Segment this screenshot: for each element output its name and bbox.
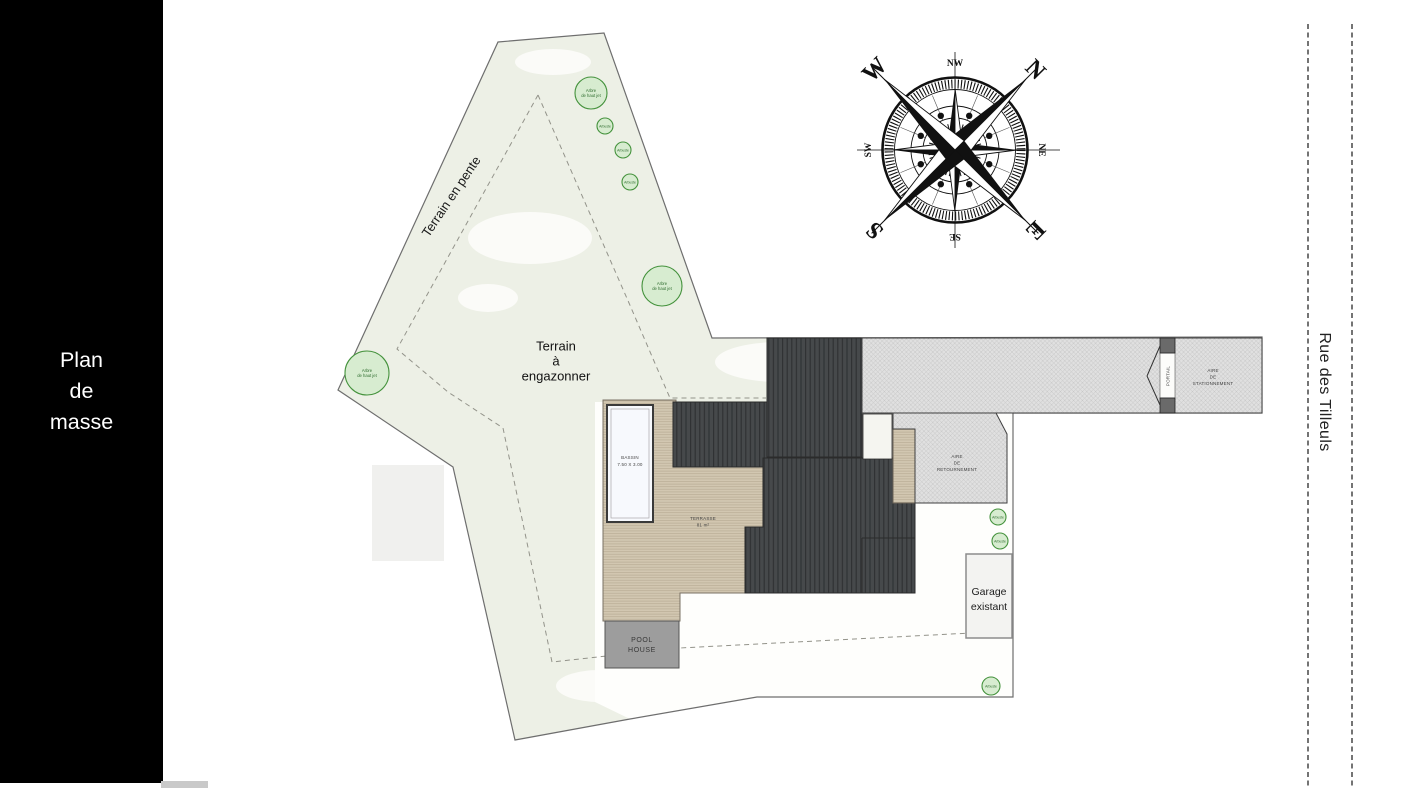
pool-house [605, 621, 679, 668]
svg-text:Arbuste: Arbuste [624, 180, 636, 184]
garage-label: Garage [971, 586, 1006, 598]
compass-se: SE [949, 231, 961, 241]
compass-rose: N E S W NW NE SE SW [857, 52, 1060, 248]
svg-text:Arbuste: Arbuste [992, 515, 1004, 519]
patio-notch [863, 414, 892, 459]
turning-area-label: DE [954, 461, 961, 466]
pool-label: BASSIN [621, 455, 639, 460]
parking-area-label: AIRE [1207, 368, 1218, 373]
svg-text:de haut jet: de haut jet [652, 286, 672, 291]
svg-text:de haut jet: de haut jet [581, 93, 601, 98]
turning-area-label: RETOURNEMENT [937, 467, 977, 472]
pool-label: 7.50 X 3.00 [617, 462, 643, 467]
slide: Plan de masse [0, 0, 1404, 788]
parking-area [862, 338, 1262, 413]
street-label: Rue des Tilleuls [1316, 332, 1333, 451]
svg-text:Arbuste: Arbuste [994, 539, 1006, 543]
compass-ne: NE [1036, 143, 1046, 156]
svg-text:Arbuste: Arbuste [985, 684, 997, 688]
lawn-label: à [552, 353, 560, 368]
svg-text:Arbuste: Arbuste [599, 124, 611, 128]
pool-house-label: POOL [631, 637, 653, 644]
lawn-label: Terrain [536, 338, 576, 353]
deck-strip [893, 429, 915, 503]
svg-text:de haut jet: de haut jet [357, 373, 377, 378]
turning-area-label: AIRE [951, 454, 962, 459]
parking-area-label: STATIONNEMENT [1193, 381, 1233, 386]
terrace-label: 81 m² [697, 523, 710, 528]
compass-sw: SW [864, 142, 874, 157]
svg-text:Arbuste: Arbuste [617, 148, 629, 152]
parking-area-label: DE [1210, 375, 1217, 380]
terrace-label: TERRASSE [690, 516, 716, 521]
pool-house-label: HOUSE [628, 647, 656, 654]
compass-nw: NW [947, 59, 964, 69]
lawn-label: engazonner [522, 368, 591, 383]
site-plan: PORTAIL Garage existant POOL HOUSE Arbre… [0, 0, 1404, 788]
garage-label: existant [971, 601, 1007, 613]
gate-label: PORTAIL [1166, 366, 1171, 387]
